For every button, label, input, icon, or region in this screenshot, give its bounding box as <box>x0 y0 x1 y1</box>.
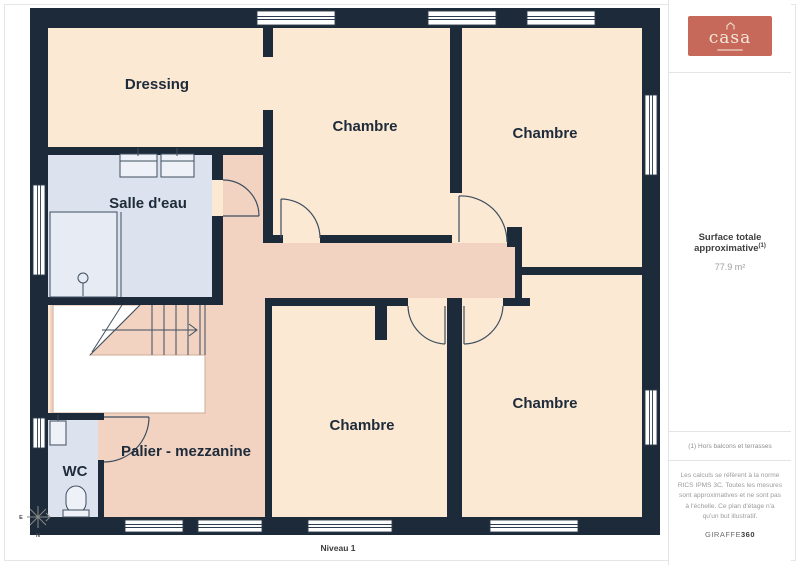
sidebar: casa Surface totale approximative(1) 77.… <box>668 0 791 565</box>
disclaimer-text: Les calculs se réfèrent à la norme RICS … <box>677 471 783 522</box>
room-label-salle-deau: Salle d'eau <box>109 195 187 212</box>
window <box>308 520 392 532</box>
compass-east-label: E <box>19 515 23 521</box>
surface-note-ref: (1) <box>759 243 766 249</box>
room-label-dressing: Dressing <box>125 76 189 93</box>
window <box>428 11 496 25</box>
surface-value: 77.9 m² <box>715 262 746 272</box>
compass-north-label: N <box>36 533 40 539</box>
shower <box>50 212 121 297</box>
window <box>257 11 335 25</box>
surface-section: Surface totale approximative(1) 77.9 m² <box>669 73 791 432</box>
window <box>198 520 262 532</box>
screenshot-root: E N Dressing Chambre Chambre Salle d'eau… <box>0 0 800 565</box>
window <box>33 185 45 275</box>
logo-tagline <box>717 49 743 51</box>
window <box>645 390 657 445</box>
agency-logo: casa <box>688 16 772 56</box>
window <box>125 520 183 532</box>
room-label-wc: WC <box>63 463 88 480</box>
window <box>490 520 578 532</box>
room-label-chambre-top-right: Chambre <box>512 125 577 142</box>
room-label-chambre-top-middle: Chambre <box>332 118 397 135</box>
floor-plan-area: E N Dressing Chambre Chambre Salle d'eau… <box>0 0 668 555</box>
legal-section: Les calculs se réfèrent à la norme RICS … <box>669 461 791 565</box>
window <box>645 95 657 175</box>
logo-wordmark: casa <box>709 31 752 46</box>
surface-title: Surface totale approximative(1) <box>675 232 785 254</box>
room-label-palier: Palier - mezzanine <box>121 443 251 460</box>
sidebar-logo-section: casa <box>669 0 791 73</box>
level-label: Niveau 1 <box>321 543 356 553</box>
footnote: (1) Hors balcons et terrasses <box>669 432 791 461</box>
room-label-chambre-bottom-right: Chambre <box>512 395 577 412</box>
room-label-chambre-bottom-middle: Chambre <box>329 417 394 434</box>
giraffe360-watermark: GIRAFFE360 <box>677 530 783 539</box>
window <box>527 11 595 25</box>
window <box>33 418 45 448</box>
floor-plan-svg: E N Dressing Chambre Chambre Salle d'eau… <box>0 0 668 560</box>
